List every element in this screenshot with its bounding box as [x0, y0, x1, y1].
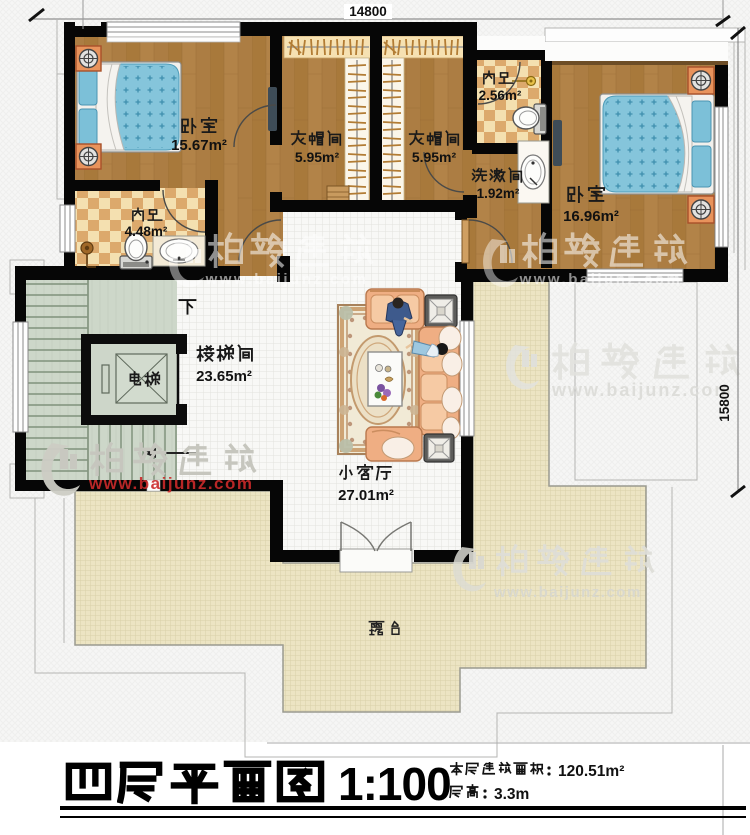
svg-text:15.67m²: 15.67m²: [171, 137, 227, 154]
svg-text:23.65m²: 23.65m²: [196, 368, 252, 385]
svg-text:16.96m²: 16.96m²: [563, 208, 619, 225]
svg-text:4.48m²: 4.48m²: [125, 224, 168, 239]
svg-text:www.baijunz.com: www.baijunz.com: [205, 271, 369, 288]
svg-text:www.baijunz.com: www.baijunz.com: [493, 584, 642, 601]
svg-text:15800: 15800: [717, 384, 732, 422]
svg-text:www.baijunz.com: www.baijunz.com: [551, 380, 732, 400]
svg-text:2.56m²: 2.56m²: [479, 88, 522, 103]
svg-text:1.92m²: 1.92m²: [477, 186, 520, 201]
svg-text:120.51m²: 120.51m²: [558, 763, 624, 780]
svg-text:5.95m²: 5.95m²: [412, 149, 457, 165]
svg-text:www.baijunz.com: www.baijunz.com: [88, 474, 254, 493]
svg-text:www.baijunz.com: www.baijunz.com: [519, 271, 683, 288]
svg-text:27.01m²: 27.01m²: [338, 487, 394, 504]
svg-text:3.3m: 3.3m: [494, 786, 529, 803]
svg-text:1:100: 1:100: [338, 758, 451, 810]
svg-text:5.95m²: 5.95m²: [295, 149, 340, 165]
svg-text:14800: 14800: [349, 4, 387, 19]
